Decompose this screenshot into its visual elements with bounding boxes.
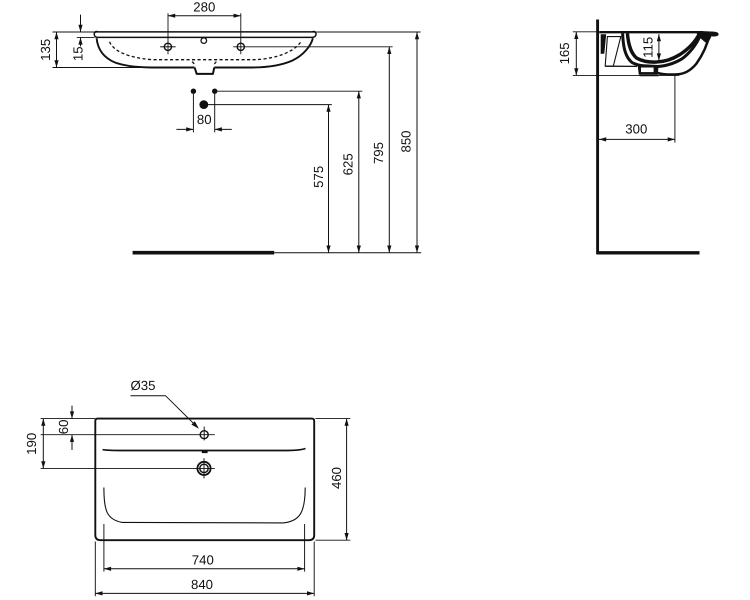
svg-text:190: 190: [24, 433, 39, 455]
svg-text:575: 575: [311, 166, 326, 188]
svg-text:80: 80: [197, 112, 212, 127]
svg-text:135: 135: [38, 39, 53, 61]
svg-text:795: 795: [371, 142, 386, 164]
svg-text:Ø35: Ø35: [131, 378, 156, 393]
svg-text:850: 850: [399, 130, 414, 152]
svg-text:740: 740: [192, 552, 214, 567]
svg-text:280: 280: [193, 0, 215, 15]
svg-text:60: 60: [56, 420, 71, 435]
svg-text:115: 115: [641, 37, 656, 58]
svg-text:460: 460: [329, 467, 344, 489]
svg-text:165: 165: [557, 42, 572, 64]
svg-text:840: 840: [191, 577, 213, 592]
svg-text:300: 300: [625, 122, 647, 137]
svg-text:625: 625: [340, 153, 355, 175]
svg-text:15: 15: [70, 46, 85, 61]
